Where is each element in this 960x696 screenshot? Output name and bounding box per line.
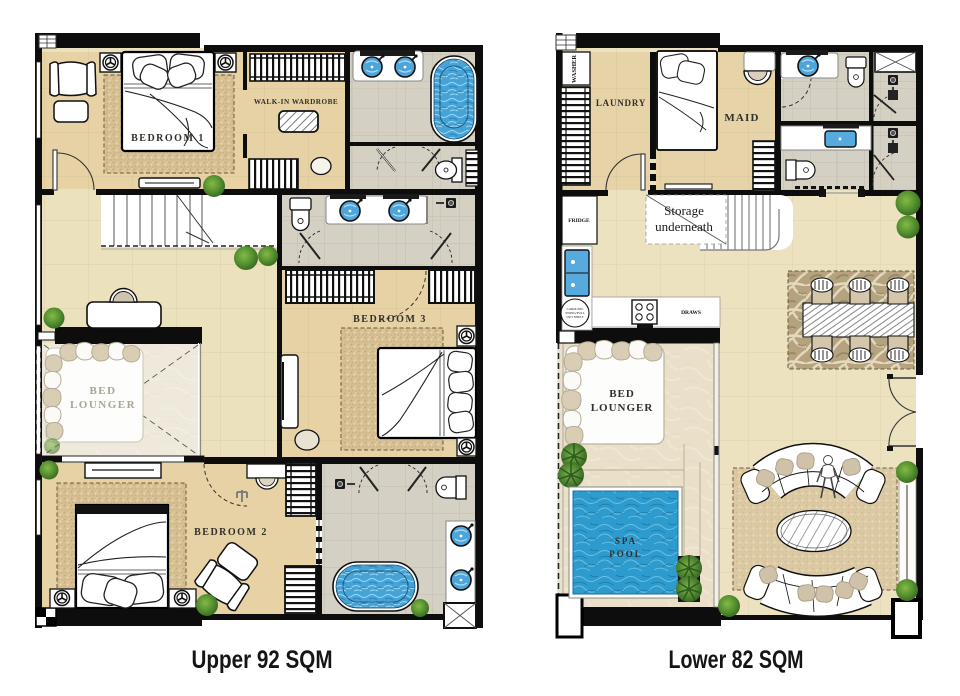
svg-text:OUT SHELF: OUT SHELF (566, 315, 583, 319)
svg-text:LOUNGER: LOUNGER (70, 399, 136, 411)
svg-text:LOUNGER: LOUNGER (591, 402, 654, 414)
svg-text:Storage: Storage (664, 203, 704, 218)
svg-text:BED: BED (89, 385, 116, 397)
svg-text:POOL: POOL (609, 549, 643, 559)
svg-text:BEDROOM 3: BEDROOM 3 (353, 314, 427, 325)
svg-text:BEDROOM 2: BEDROOM 2 (194, 527, 268, 538)
svg-text:WASHER: WASHER (571, 55, 578, 83)
svg-text:Lower 82 SQM: Lower 82 SQM (669, 646, 804, 674)
svg-text:FRIDGE: FRIDGE (568, 218, 590, 224)
svg-text:BEDROOM 1: BEDROOM 1 (131, 133, 205, 144)
svg-text:WALK-IN WARDROBE: WALK-IN WARDROBE (254, 98, 338, 106)
svg-text:DRAWS: DRAWS (681, 310, 701, 316)
svg-text:BED: BED (609, 388, 635, 400)
svg-text:LAUNDRY: LAUNDRY (596, 98, 646, 108)
svg-text:SPA: SPA (615, 536, 637, 546)
svg-text:underneath: underneath (655, 219, 713, 234)
svg-text:MAID: MAID (724, 112, 759, 124)
svg-text:Upper 92 SQM: Upper 92 SQM (192, 646, 333, 674)
